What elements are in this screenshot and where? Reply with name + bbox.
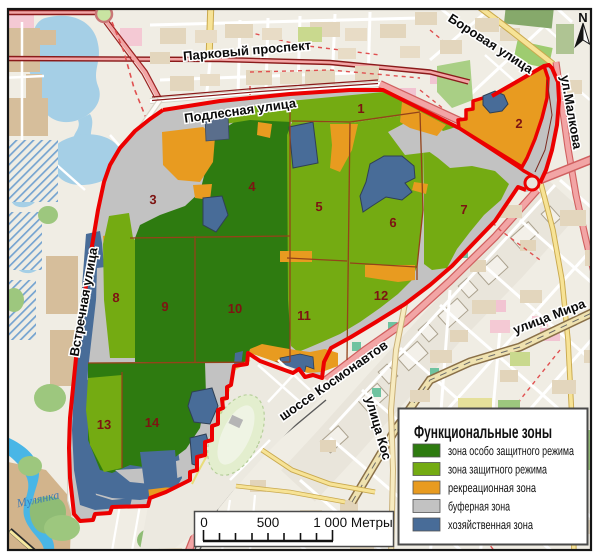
svg-text:10: 10 bbox=[228, 301, 242, 316]
svg-text:3: 3 bbox=[149, 192, 156, 207]
svg-text:5: 5 bbox=[315, 199, 322, 214]
svg-text:зона защитного режима: зона защитного режима bbox=[448, 463, 547, 477]
svg-text:6: 6 bbox=[389, 215, 396, 230]
svg-text:0: 0 bbox=[200, 515, 208, 530]
svg-text:14: 14 bbox=[145, 415, 160, 430]
svg-text:1 000 Метры: 1 000 Метры bbox=[313, 515, 392, 530]
svg-text:буферная зона: буферная зона bbox=[448, 500, 510, 514]
svg-text:13: 13 bbox=[97, 417, 111, 432]
svg-text:1: 1 bbox=[357, 101, 364, 116]
svg-text:2: 2 bbox=[515, 116, 522, 131]
svg-text:12: 12 bbox=[374, 288, 388, 303]
svg-text:N: N bbox=[578, 10, 587, 25]
svg-text:9: 9 bbox=[161, 299, 168, 314]
svg-text:11: 11 bbox=[297, 308, 311, 323]
svg-text:зона особо защитного режима: зона особо защитного режима bbox=[448, 444, 574, 458]
svg-text:8: 8 bbox=[112, 290, 119, 305]
svg-text:рекреационная зона: рекреационная зона bbox=[448, 481, 536, 495]
svg-text:Функциональные зоны: Функциональные зоны bbox=[414, 422, 552, 442]
svg-text:хозяйственная зона: хозяйственная зона bbox=[448, 518, 533, 532]
svg-text:7: 7 bbox=[460, 202, 467, 217]
svg-text:500: 500 bbox=[257, 515, 280, 530]
svg-text:4: 4 bbox=[248, 179, 256, 194]
